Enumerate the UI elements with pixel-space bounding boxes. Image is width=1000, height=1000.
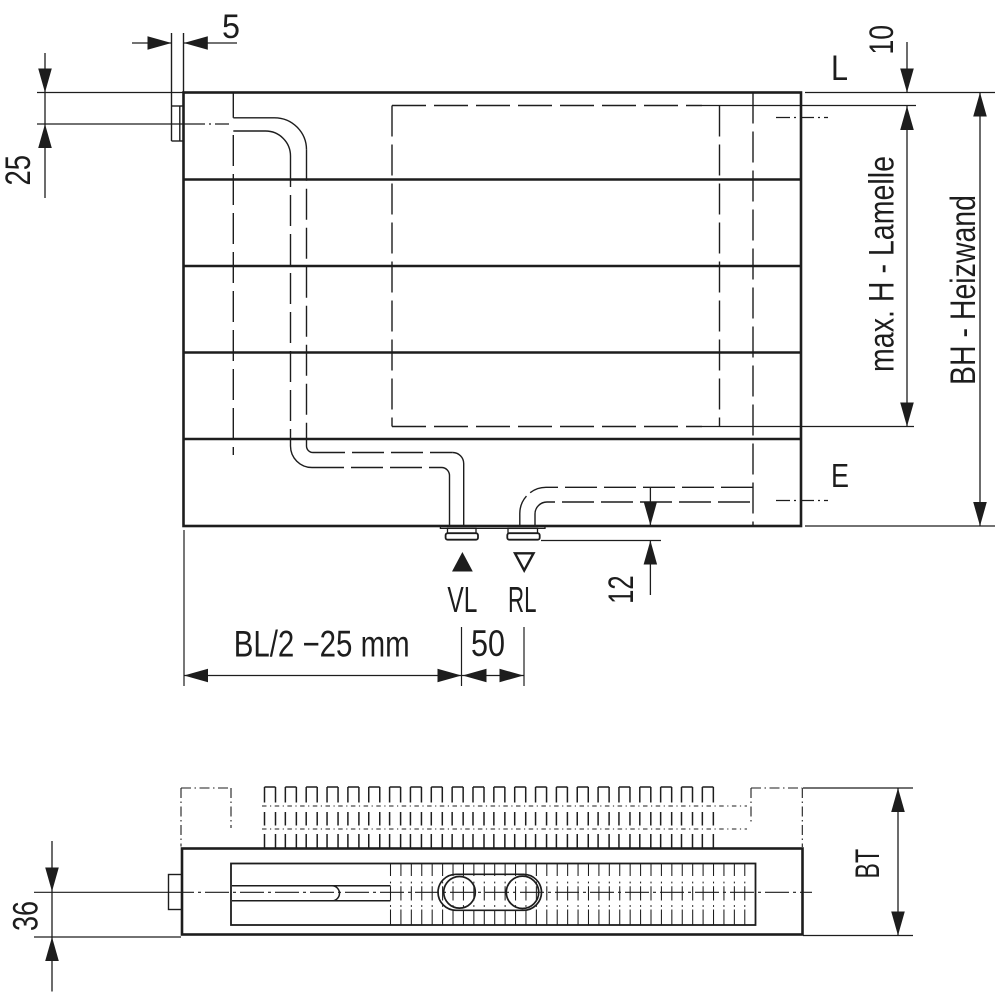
svg-text:L: L	[831, 49, 848, 88]
svg-text:25: 25	[0, 155, 38, 186]
svg-text:10: 10	[863, 25, 901, 55]
svg-text:E: E	[831, 457, 849, 494]
svg-text:max. H - Lamelle: max. H - Lamelle	[863, 156, 902, 372]
svg-text:RL: RL	[508, 579, 537, 620]
svg-text:BT: BT	[849, 849, 887, 879]
svg-text:BH - Heizwand: BH - Heizwand	[944, 195, 983, 385]
svg-text:VL: VL	[447, 579, 477, 620]
svg-text:36: 36	[6, 901, 45, 931]
svg-text:BL/2 −25 mm: BL/2 −25 mm	[234, 623, 410, 664]
svg-text:5: 5	[222, 8, 240, 46]
svg-text:50: 50	[471, 623, 505, 664]
svg-text:12: 12	[602, 575, 641, 604]
